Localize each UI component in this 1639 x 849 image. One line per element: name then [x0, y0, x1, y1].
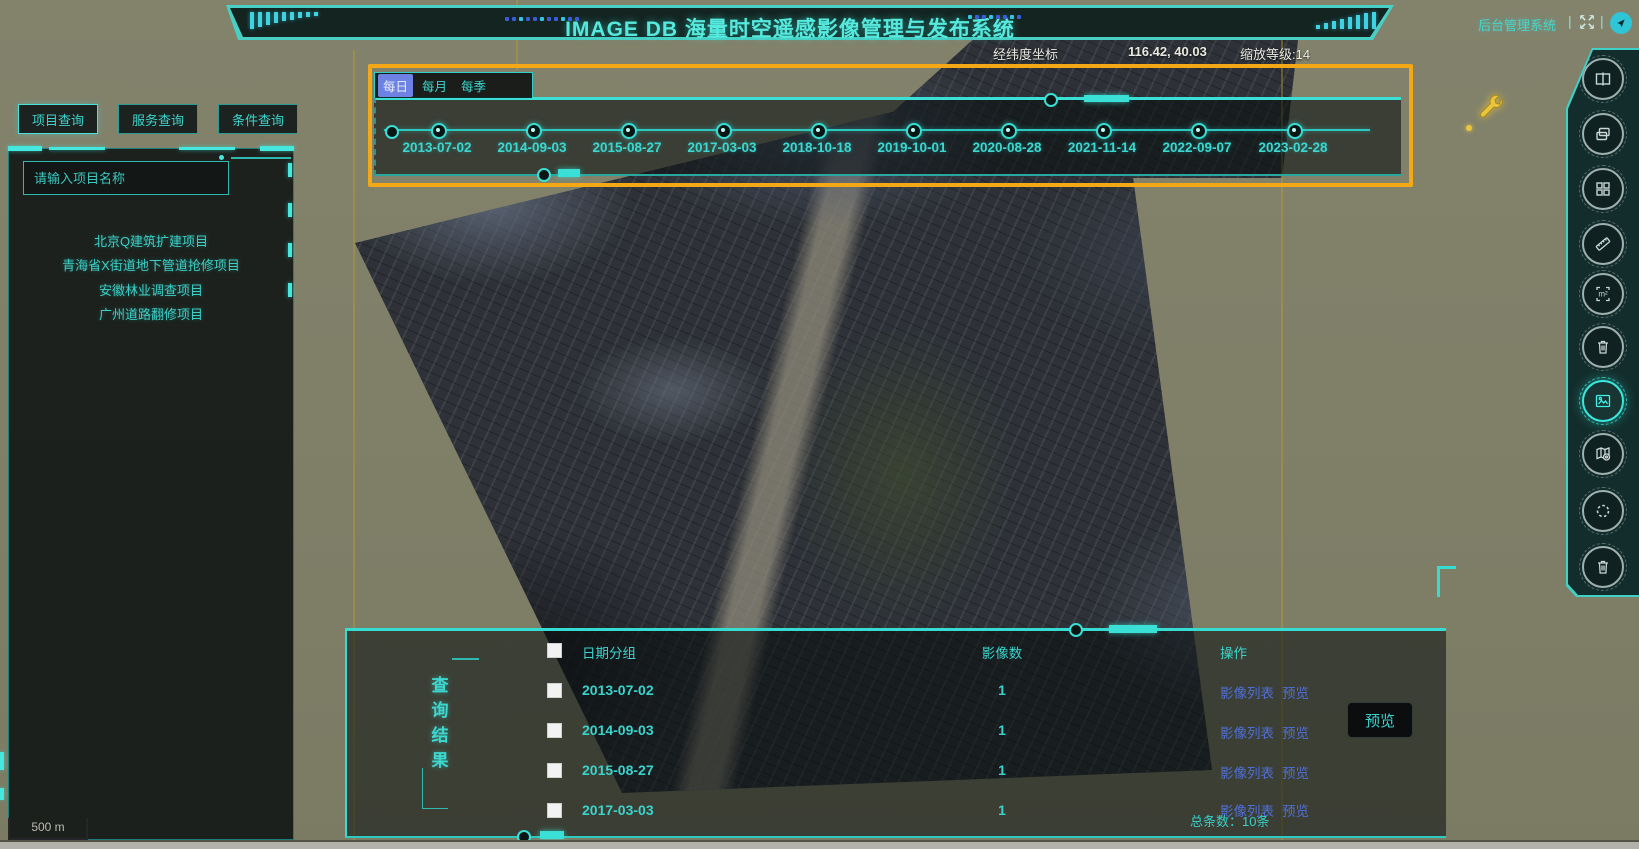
fullscreen-icon[interactable]	[1578, 13, 1596, 36]
tab-label: 项目查询	[32, 110, 84, 129]
row-checkbox[interactable]	[547, 723, 562, 738]
image-list-link[interactable]: 影像列表	[1220, 726, 1274, 741]
panel-edge-decor	[288, 163, 292, 177]
map-annotation-icon[interactable]	[1582, 433, 1624, 475]
project-list-item[interactable]: 安徽林业调查项目	[9, 280, 293, 299]
row-date: 2014-09-03	[582, 722, 654, 738]
row-date: 2017-03-03	[582, 802, 654, 818]
refresh-loading-icon[interactable]	[1582, 490, 1624, 532]
row-checkbox[interactable]	[547, 763, 562, 778]
row-count: 1	[977, 802, 1027, 818]
app-title: IMAGE DB 海量时空遥感影像管理与发布系统	[560, 13, 1020, 43]
select-all-checkbox[interactable]	[547, 643, 562, 658]
equalizer-bars-icon	[250, 12, 318, 29]
results-title-decor	[452, 658, 479, 660]
row-actions: 影像列表预览	[1220, 762, 1317, 782]
image-list-link[interactable]: 影像列表	[1220, 766, 1274, 781]
tab-label: 条件查询	[232, 110, 284, 129]
map-scale-label: 500 m	[31, 820, 64, 834]
map-scale: 500 m	[8, 818, 88, 840]
project-search-input[interactable]	[23, 161, 229, 195]
results-title-vertical: 查询结果	[429, 673, 451, 773]
row-date: 2013-07-02	[582, 682, 654, 698]
results-title-bracket	[422, 768, 448, 809]
edge-decor	[0, 752, 4, 770]
decor-dots	[968, 15, 1021, 19]
highlight-annotation	[368, 64, 1413, 187]
panel-edge-decor	[288, 203, 292, 217]
delete-icon[interactable]	[1582, 326, 1624, 368]
image-list-link[interactable]: 影像列表	[1220, 686, 1274, 701]
row-checkbox[interactable]	[547, 683, 562, 698]
image-export-icon[interactable]	[1582, 380, 1624, 422]
wrench-cursor-icon	[1476, 90, 1506, 129]
row-actions: 影像列表预览	[1220, 682, 1317, 702]
svg-text:m²: m²	[1598, 290, 1608, 299]
results-scroll-handle[interactable]	[1069, 623, 1083, 637]
row-count: 1	[977, 722, 1027, 738]
row-count: 1	[977, 682, 1027, 698]
panel-corner-decor	[8, 146, 42, 151]
admin-system-link[interactable]: 后台管理系统	[1478, 15, 1556, 34]
total-count: 总条数：10条	[1190, 811, 1269, 830]
tab-condition-query[interactable]: 条件查询	[218, 104, 298, 134]
panel-decor	[49, 147, 105, 150]
column-header-actions: 操作	[1220, 642, 1247, 662]
equalizer-bars-icon	[1316, 12, 1376, 29]
decor-dots	[505, 17, 579, 21]
column-header-count: 影像数	[972, 642, 1032, 662]
results-scrollbar-thumb[interactable]	[1109, 625, 1157, 633]
measure-distance-icon[interactable]	[1582, 223, 1624, 265]
row-actions: 影像列表预览	[1220, 722, 1317, 742]
preview-link[interactable]: 预览	[1282, 686, 1309, 701]
panel-line	[231, 157, 291, 159]
grid-split-icon[interactable]	[1582, 168, 1624, 210]
layer-manage-icon[interactable]	[1582, 113, 1624, 155]
preview-link[interactable]: 预览	[1282, 766, 1309, 781]
divider: |	[1568, 13, 1572, 29]
row-checkbox[interactable]	[547, 803, 562, 818]
corner-bracket-decor	[1437, 566, 1456, 597]
panel-corner-decor	[260, 146, 294, 151]
results-bottom-thumb[interactable]	[540, 831, 564, 839]
row-count: 1	[977, 762, 1027, 778]
coords-label: 经纬度坐标	[993, 44, 1058, 63]
project-list-item[interactable]: 北京Q建筑扩建项目	[9, 231, 293, 250]
preview-link[interactable]: 预览	[1282, 726, 1309, 741]
query-results-panel: 查询结果 日期分组 影像数 操作 2013-07-02 1 影像列表预览 201…	[345, 628, 1446, 838]
bottom-strip	[0, 840, 1639, 849]
row-date: 2015-08-27	[582, 762, 654, 778]
zoom-level: 缩放等级:14	[1240, 44, 1310, 63]
clear-all-icon[interactable]	[1582, 546, 1624, 588]
project-list-item[interactable]: 青海省X街道地下管道抢修项目	[9, 255, 293, 274]
preview-button[interactable]: 预览	[1348, 703, 1412, 737]
project-list-item[interactable]: 广州道路翻修项目	[9, 304, 293, 323]
tab-label: 服务查询	[132, 110, 184, 129]
panel-decor	[179, 147, 235, 150]
measure-area-icon[interactable]: m²	[1582, 273, 1624, 315]
edge-decor	[0, 788, 4, 800]
tab-project-query[interactable]: 项目查询	[18, 104, 98, 134]
divider: |	[1600, 13, 1604, 29]
cursor-dot	[1466, 125, 1472, 131]
project-query-panel: 北京Q建筑扩建项目 青海省X街道地下管道抢修项目 安徽林业调查项目 广州道路翻修…	[8, 148, 294, 840]
locate-icon[interactable]	[1610, 12, 1632, 34]
map-toolbar: m²	[1568, 50, 1639, 595]
app-window: IMAGE DB 海量时空遥感影像管理与发布系统 后台管理系统 | | 经纬度坐…	[0, 0, 1639, 849]
tab-service-query[interactable]: 服务查询	[118, 104, 198, 134]
column-header-date: 日期分组	[582, 642, 636, 662]
preview-link[interactable]: 预览	[1282, 804, 1309, 819]
swipe-compare-icon[interactable]	[1582, 58, 1624, 100]
panel-dot	[219, 155, 224, 160]
coords-value: 116.42, 40.03	[1128, 44, 1207, 59]
